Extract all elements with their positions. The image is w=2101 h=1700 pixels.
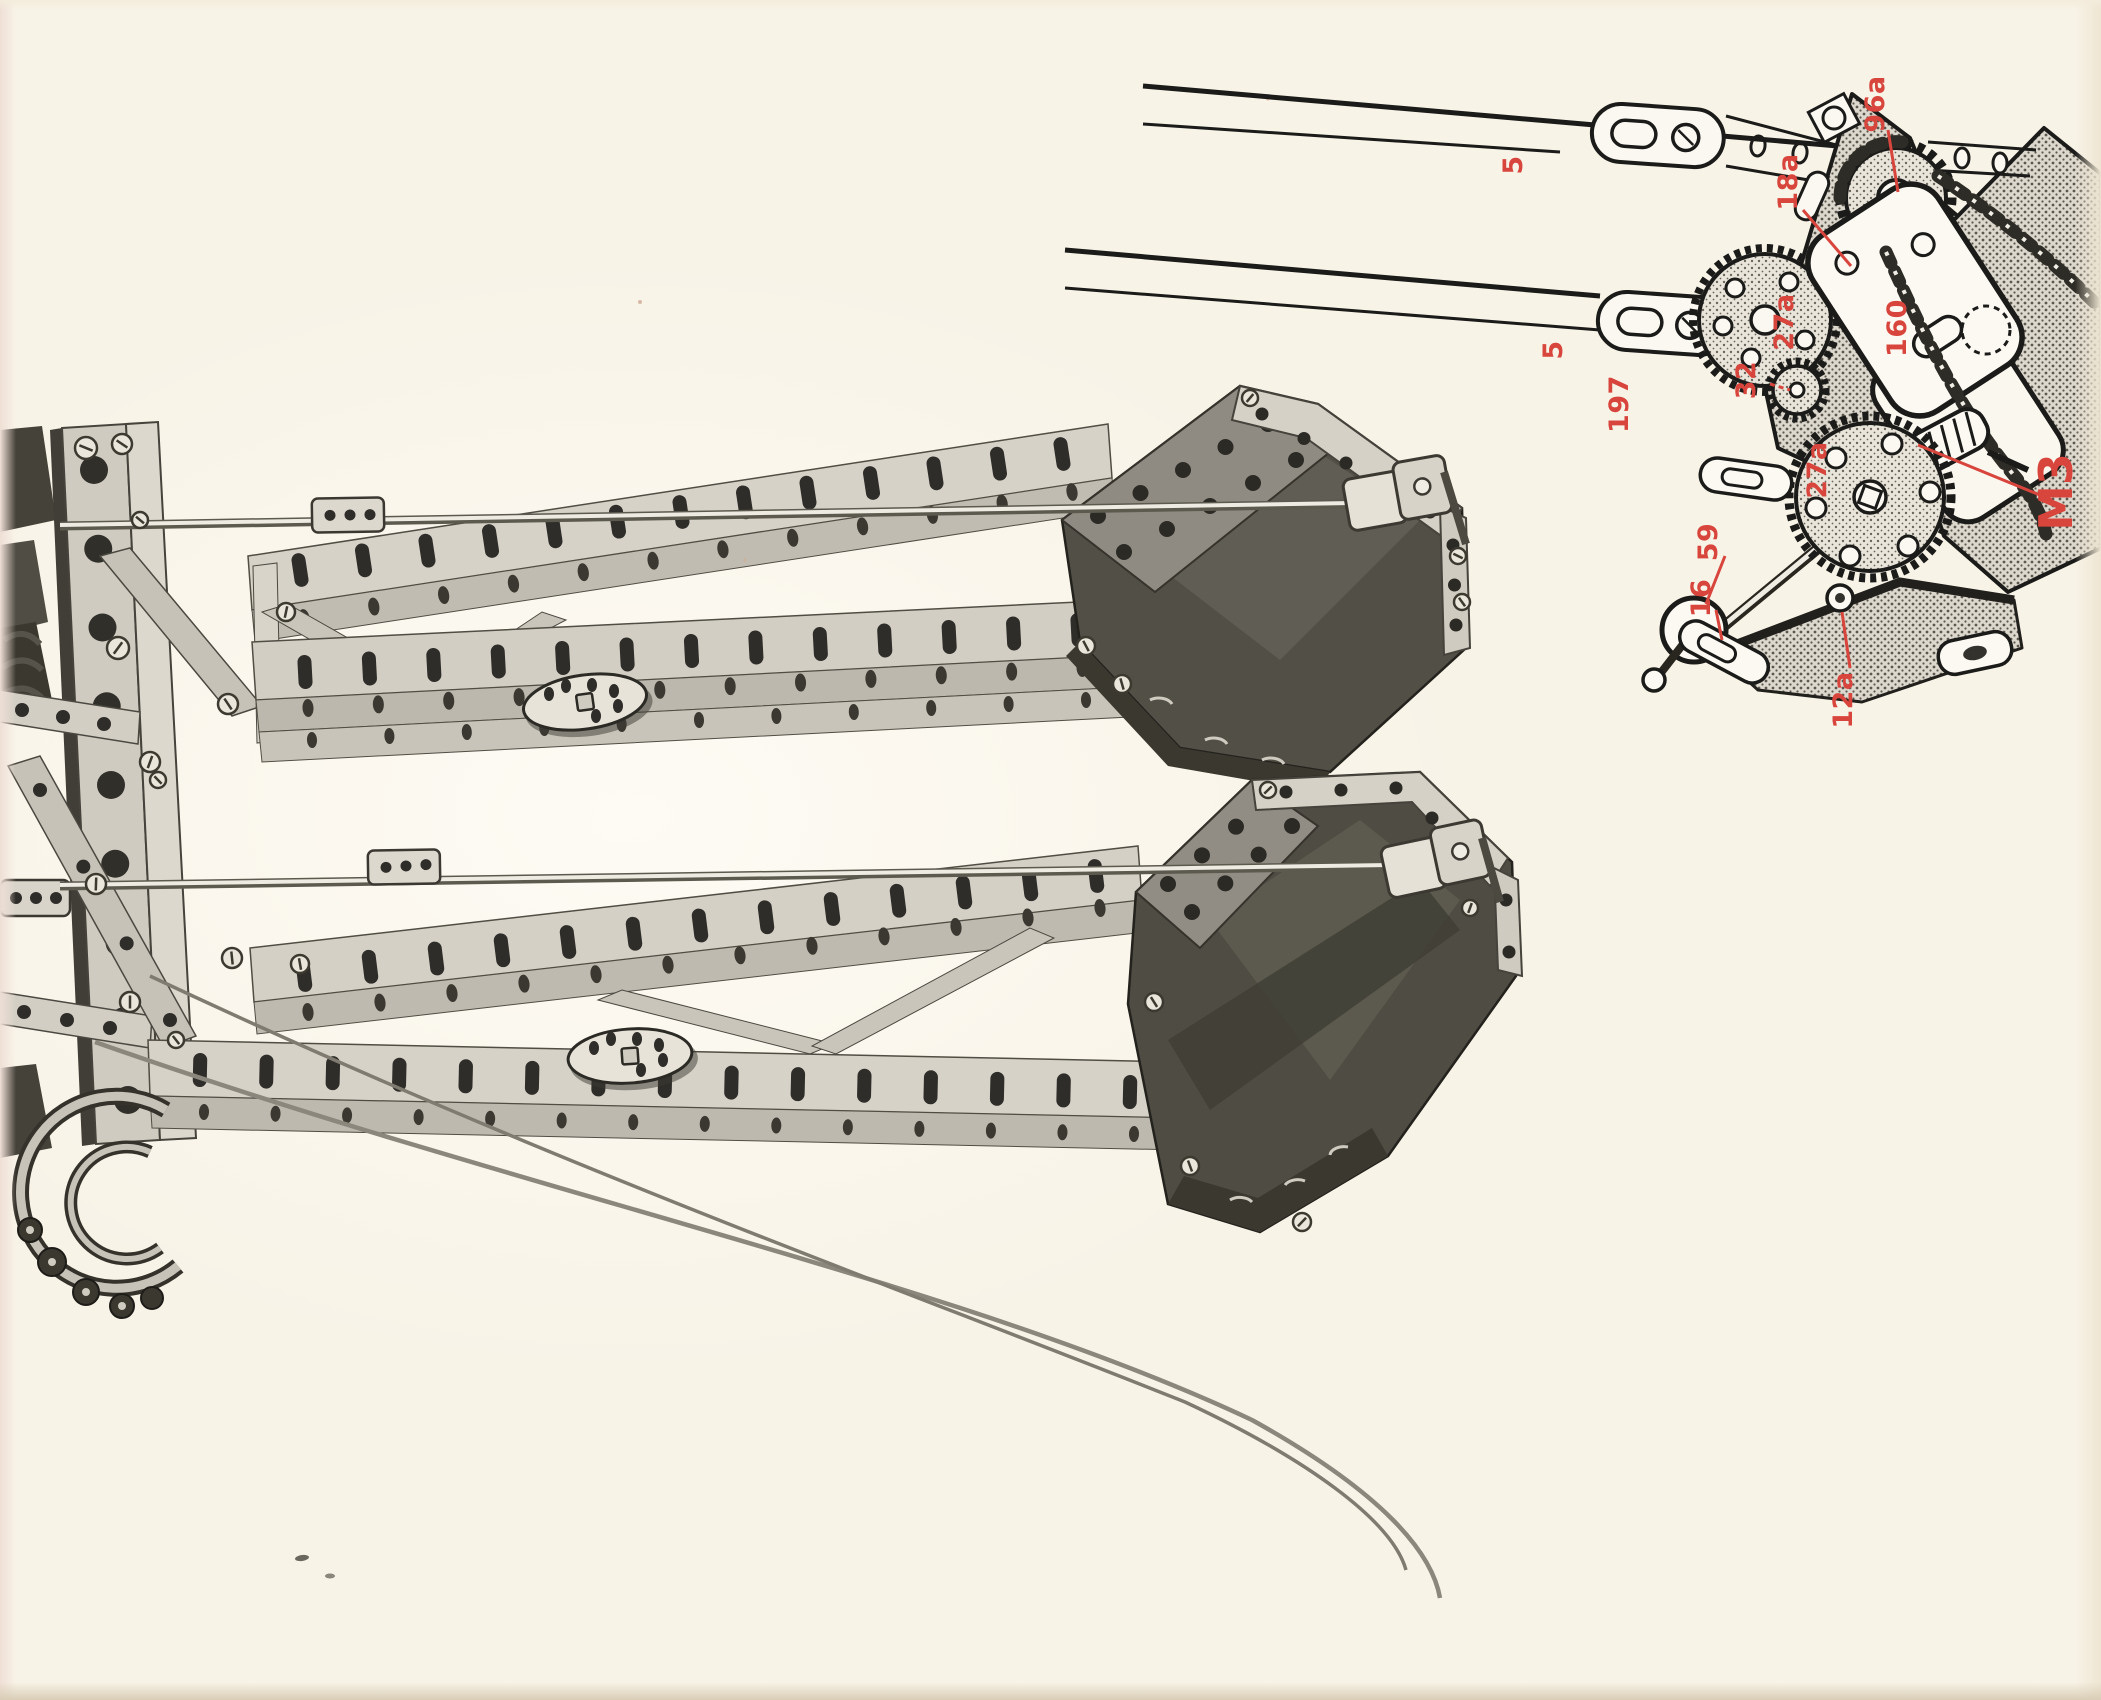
round-hole: [1228, 819, 1244, 835]
manual-page: 5 96a 18a 5 197 27a 160 32 27a 59 16 12a…: [0, 0, 2101, 1700]
round-hole: [76, 860, 90, 874]
round-hole: [1280, 786, 1293, 799]
slot-hole: [490, 644, 506, 679]
round-hole: [56, 710, 70, 724]
slot-hole: [525, 1061, 540, 1095]
slot-hole: [1123, 1075, 1138, 1109]
part-label-16: 16: [1686, 579, 1717, 618]
slot-hole: [362, 651, 378, 686]
slot-hole: [193, 1053, 208, 1087]
part-label-12a: 12a: [1828, 671, 1859, 728]
anchor-lug: [1698, 456, 1794, 502]
page-edge-right: [2075, 0, 2101, 1700]
part-label-27a-lower: 27a: [1802, 441, 1833, 498]
part-label-59: 59: [1693, 523, 1724, 562]
slot-hole: [259, 1054, 274, 1088]
page-edge-left: [0, 0, 16, 1700]
slot-hole: [941, 620, 957, 655]
slot-hole: [877, 623, 893, 658]
round-hole: [1116, 544, 1132, 560]
slot-hole: [426, 648, 442, 683]
round-hole: [1503, 946, 1516, 959]
part-label-5-upper: 5: [1498, 155, 1529, 174]
slot-hole: [923, 1070, 938, 1104]
page-edge-bottom: [0, 1682, 2101, 1700]
slot-hole: [619, 637, 635, 672]
page-edge-top: [0, 0, 2101, 10]
round-hole: [1284, 818, 1300, 834]
part-label-18a: 18a: [1773, 153, 1804, 210]
round-hole: [60, 1013, 74, 1027]
screw-slot: [231, 952, 232, 965]
round-hole: [1133, 485, 1149, 501]
slot-hole: [1056, 1073, 1071, 1107]
crank-knob: [1643, 669, 1665, 691]
slot-hole: [990, 1072, 1005, 1106]
round-hole: [1245, 475, 1261, 491]
round-hole: [1217, 875, 1233, 891]
round-hole: [1288, 452, 1304, 468]
slot-hole: [724, 1065, 739, 1099]
strip-end-cap: [1590, 102, 1726, 169]
part-label-5-lower: 5: [1538, 340, 1569, 359]
round-hole: [1160, 876, 1176, 892]
artwork: 5 96a 18a 5 197 27a 160 32 27a 59 16 12a…: [0, 0, 2101, 1700]
round-hole: [33, 783, 47, 797]
lower-jib: [148, 846, 1182, 1150]
slot-hole: [812, 627, 828, 662]
round-hole: [103, 1021, 117, 1035]
round-hole: [97, 717, 111, 731]
round-hole: [17, 1005, 31, 1019]
paper-specks: [295, 96, 1271, 1579]
slot-hole: [684, 634, 700, 669]
slot-hole: [748, 630, 764, 665]
strip-5-lower: [1065, 250, 1790, 360]
slot-hole: [555, 641, 571, 676]
part-label-27a-upper: 27a: [1769, 293, 1800, 350]
rod-collar: [312, 497, 385, 532]
round-hole: [1159, 521, 1175, 537]
round-hole: [1426, 812, 1439, 825]
part-label-96a: 96a: [1860, 75, 1891, 132]
strip-5-upper: [1143, 86, 1844, 186]
round-hole: [120, 936, 134, 950]
slot-hole: [297, 655, 313, 690]
slot-hole: [1006, 616, 1022, 651]
round-hole: [1298, 432, 1311, 445]
round-hole: [97, 771, 125, 799]
round-hole: [1448, 579, 1461, 592]
upper-jib: [248, 424, 1130, 762]
slot-hole: [857, 1069, 872, 1103]
round-hole: [1194, 847, 1210, 863]
part-label-160: 160: [1882, 299, 1913, 357]
rod-collar: [368, 849, 441, 884]
round-hole: [163, 1013, 177, 1027]
round-hole: [1335, 784, 1348, 797]
end-box-upper: [1062, 386, 1470, 792]
part-label-32: 32: [1731, 361, 1762, 400]
round-hole: [1450, 619, 1463, 632]
round-hole: [1175, 462, 1191, 478]
round-hole: [1390, 782, 1403, 795]
round-hole: [80, 456, 108, 484]
photo-illustration: [0, 96, 1522, 1599]
bolt-12a-center: [1835, 593, 1845, 603]
slot-hole: [458, 1059, 473, 1093]
round-hole: [1251, 847, 1267, 863]
round-hole: [1218, 439, 1234, 455]
round-hole: [1340, 457, 1353, 470]
part-label-197: 197: [1604, 375, 1635, 433]
round-hole: [15, 703, 29, 717]
round-hole: [1256, 408, 1269, 421]
bolt-cluster: [18, 1218, 163, 1318]
round-hole: [1184, 904, 1200, 920]
slot-hole: [790, 1067, 805, 1101]
